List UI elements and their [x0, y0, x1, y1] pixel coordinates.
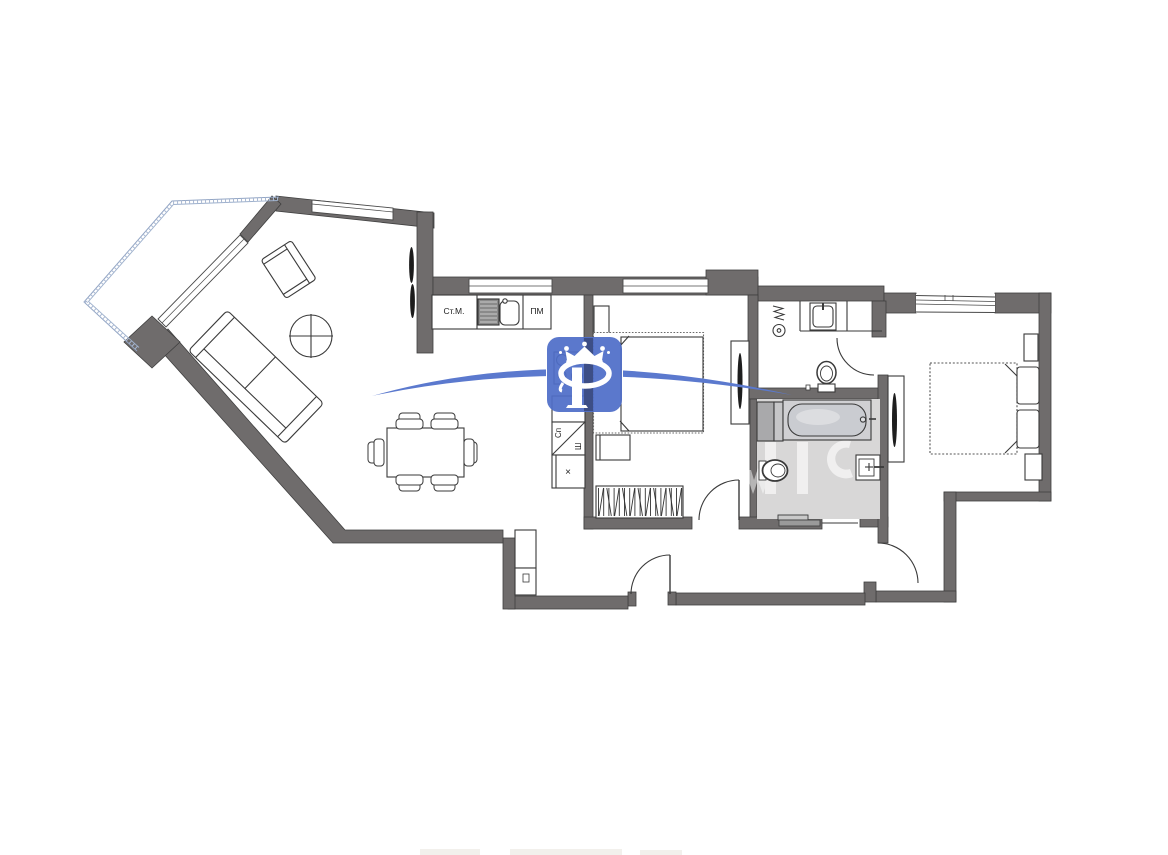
svg-text:Ш: Ш — [574, 443, 583, 450]
svg-text:Ст.М.: Ст.М. — [444, 306, 465, 316]
svg-text:ПМ: ПМ — [530, 306, 543, 316]
svg-text:Сп: Сп — [554, 428, 563, 438]
svg-text:×: × — [565, 467, 571, 478]
